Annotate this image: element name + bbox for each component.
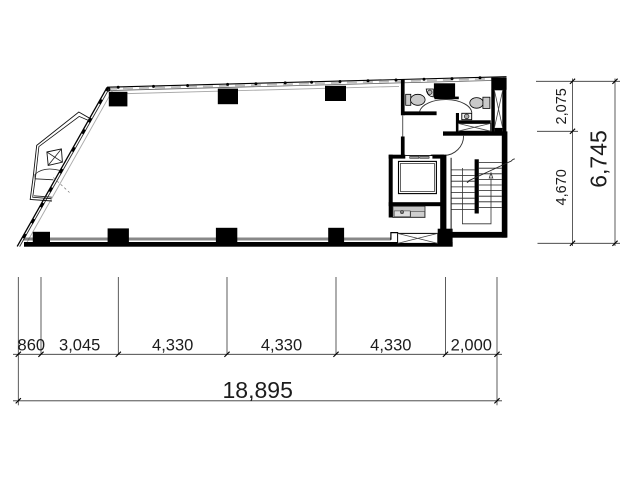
svg-text:18,895: 18,895	[223, 377, 293, 403]
svg-text:4,330: 4,330	[152, 337, 193, 355]
svg-text:3,045: 3,045	[59, 337, 100, 355]
svg-text:2,075: 2,075	[554, 88, 570, 124]
svg-text:6,745: 6,745	[586, 130, 612, 188]
svg-text:4,670: 4,670	[554, 169, 570, 205]
svg-text:860: 860	[18, 337, 46, 355]
svg-text:4,330: 4,330	[261, 337, 302, 355]
svg-text:2,000: 2,000	[451, 337, 492, 355]
svg-text:4,330: 4,330	[370, 337, 411, 355]
